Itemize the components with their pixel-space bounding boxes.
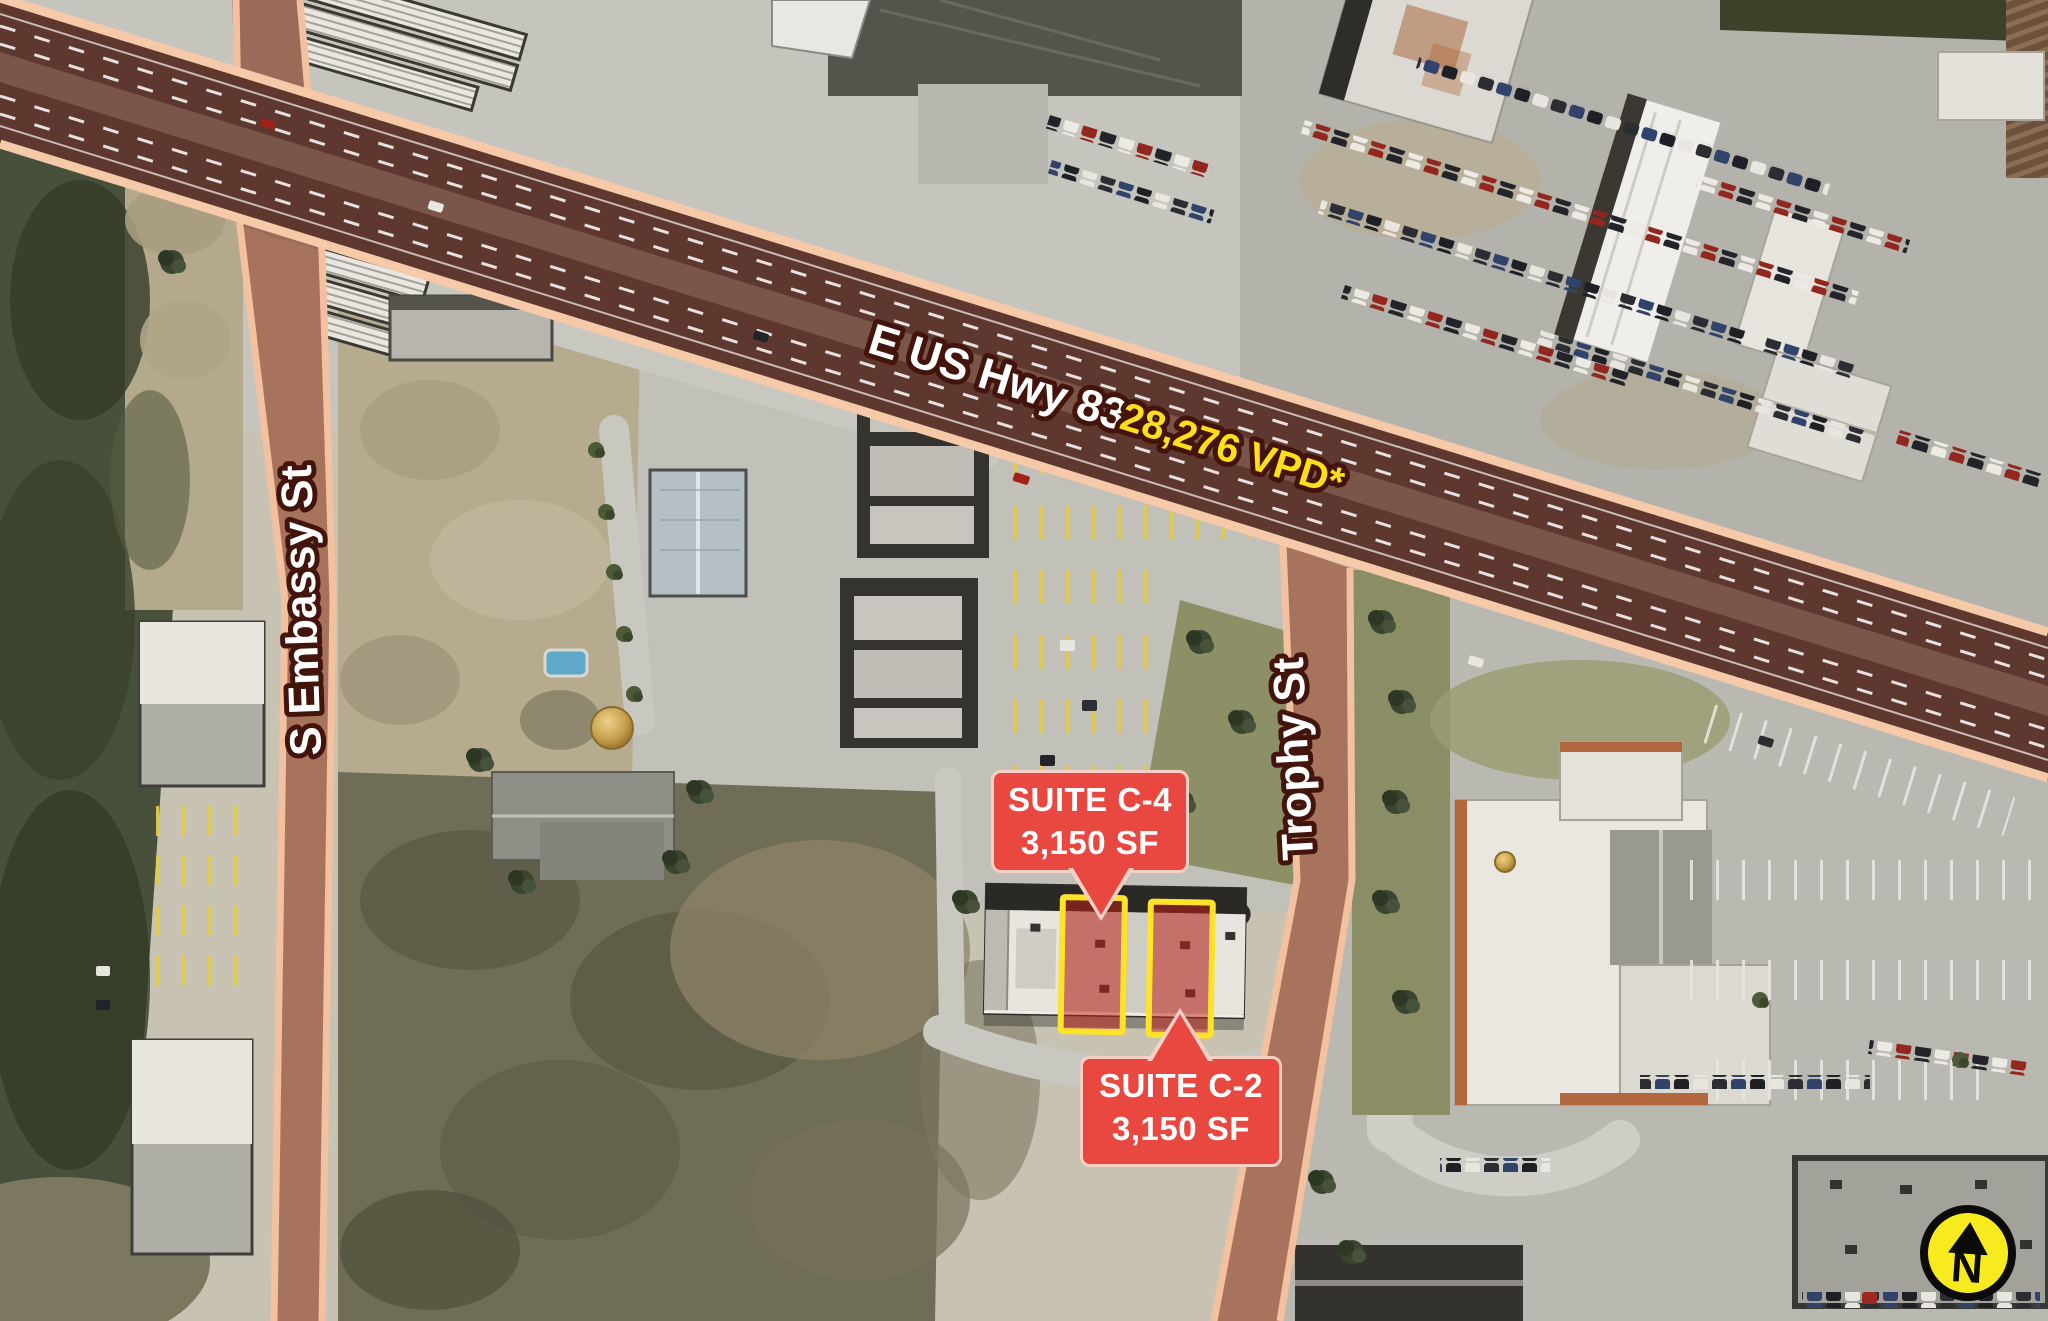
callout-suite-c2-title: SUITE C-2 <box>1083 1064 1279 1107</box>
strip-building-b <box>840 578 978 748</box>
satellite-scene: E US Hwy 83 28,276 VPD* S Embassy St Tro… <box>0 0 2048 1321</box>
callout-suite-c4: SUITE C-4 3,150 SF <box>991 770 1189 873</box>
aerial-map: E US Hwy 83 28,276 VPD* S Embassy St Tro… <box>0 0 2048 1321</box>
metal-roof-building <box>650 470 746 596</box>
north-arrow-icon <box>1948 1221 1990 1256</box>
gabled-building <box>1295 1245 1523 1321</box>
callout-suite-c2-size: 3,150 SF <box>1083 1107 1279 1150</box>
embassy-street-label: S Embassy St <box>272 464 331 757</box>
callout-suite-c2: SUITE C-2 3,150 SF <box>1080 1056 1282 1167</box>
callout-suite-c4-size: 3,150 SF <box>994 821 1186 864</box>
suite-c4-highlight <box>1061 897 1125 1032</box>
callout-suite-c4-title: SUITE C-4 <box>994 778 1186 821</box>
